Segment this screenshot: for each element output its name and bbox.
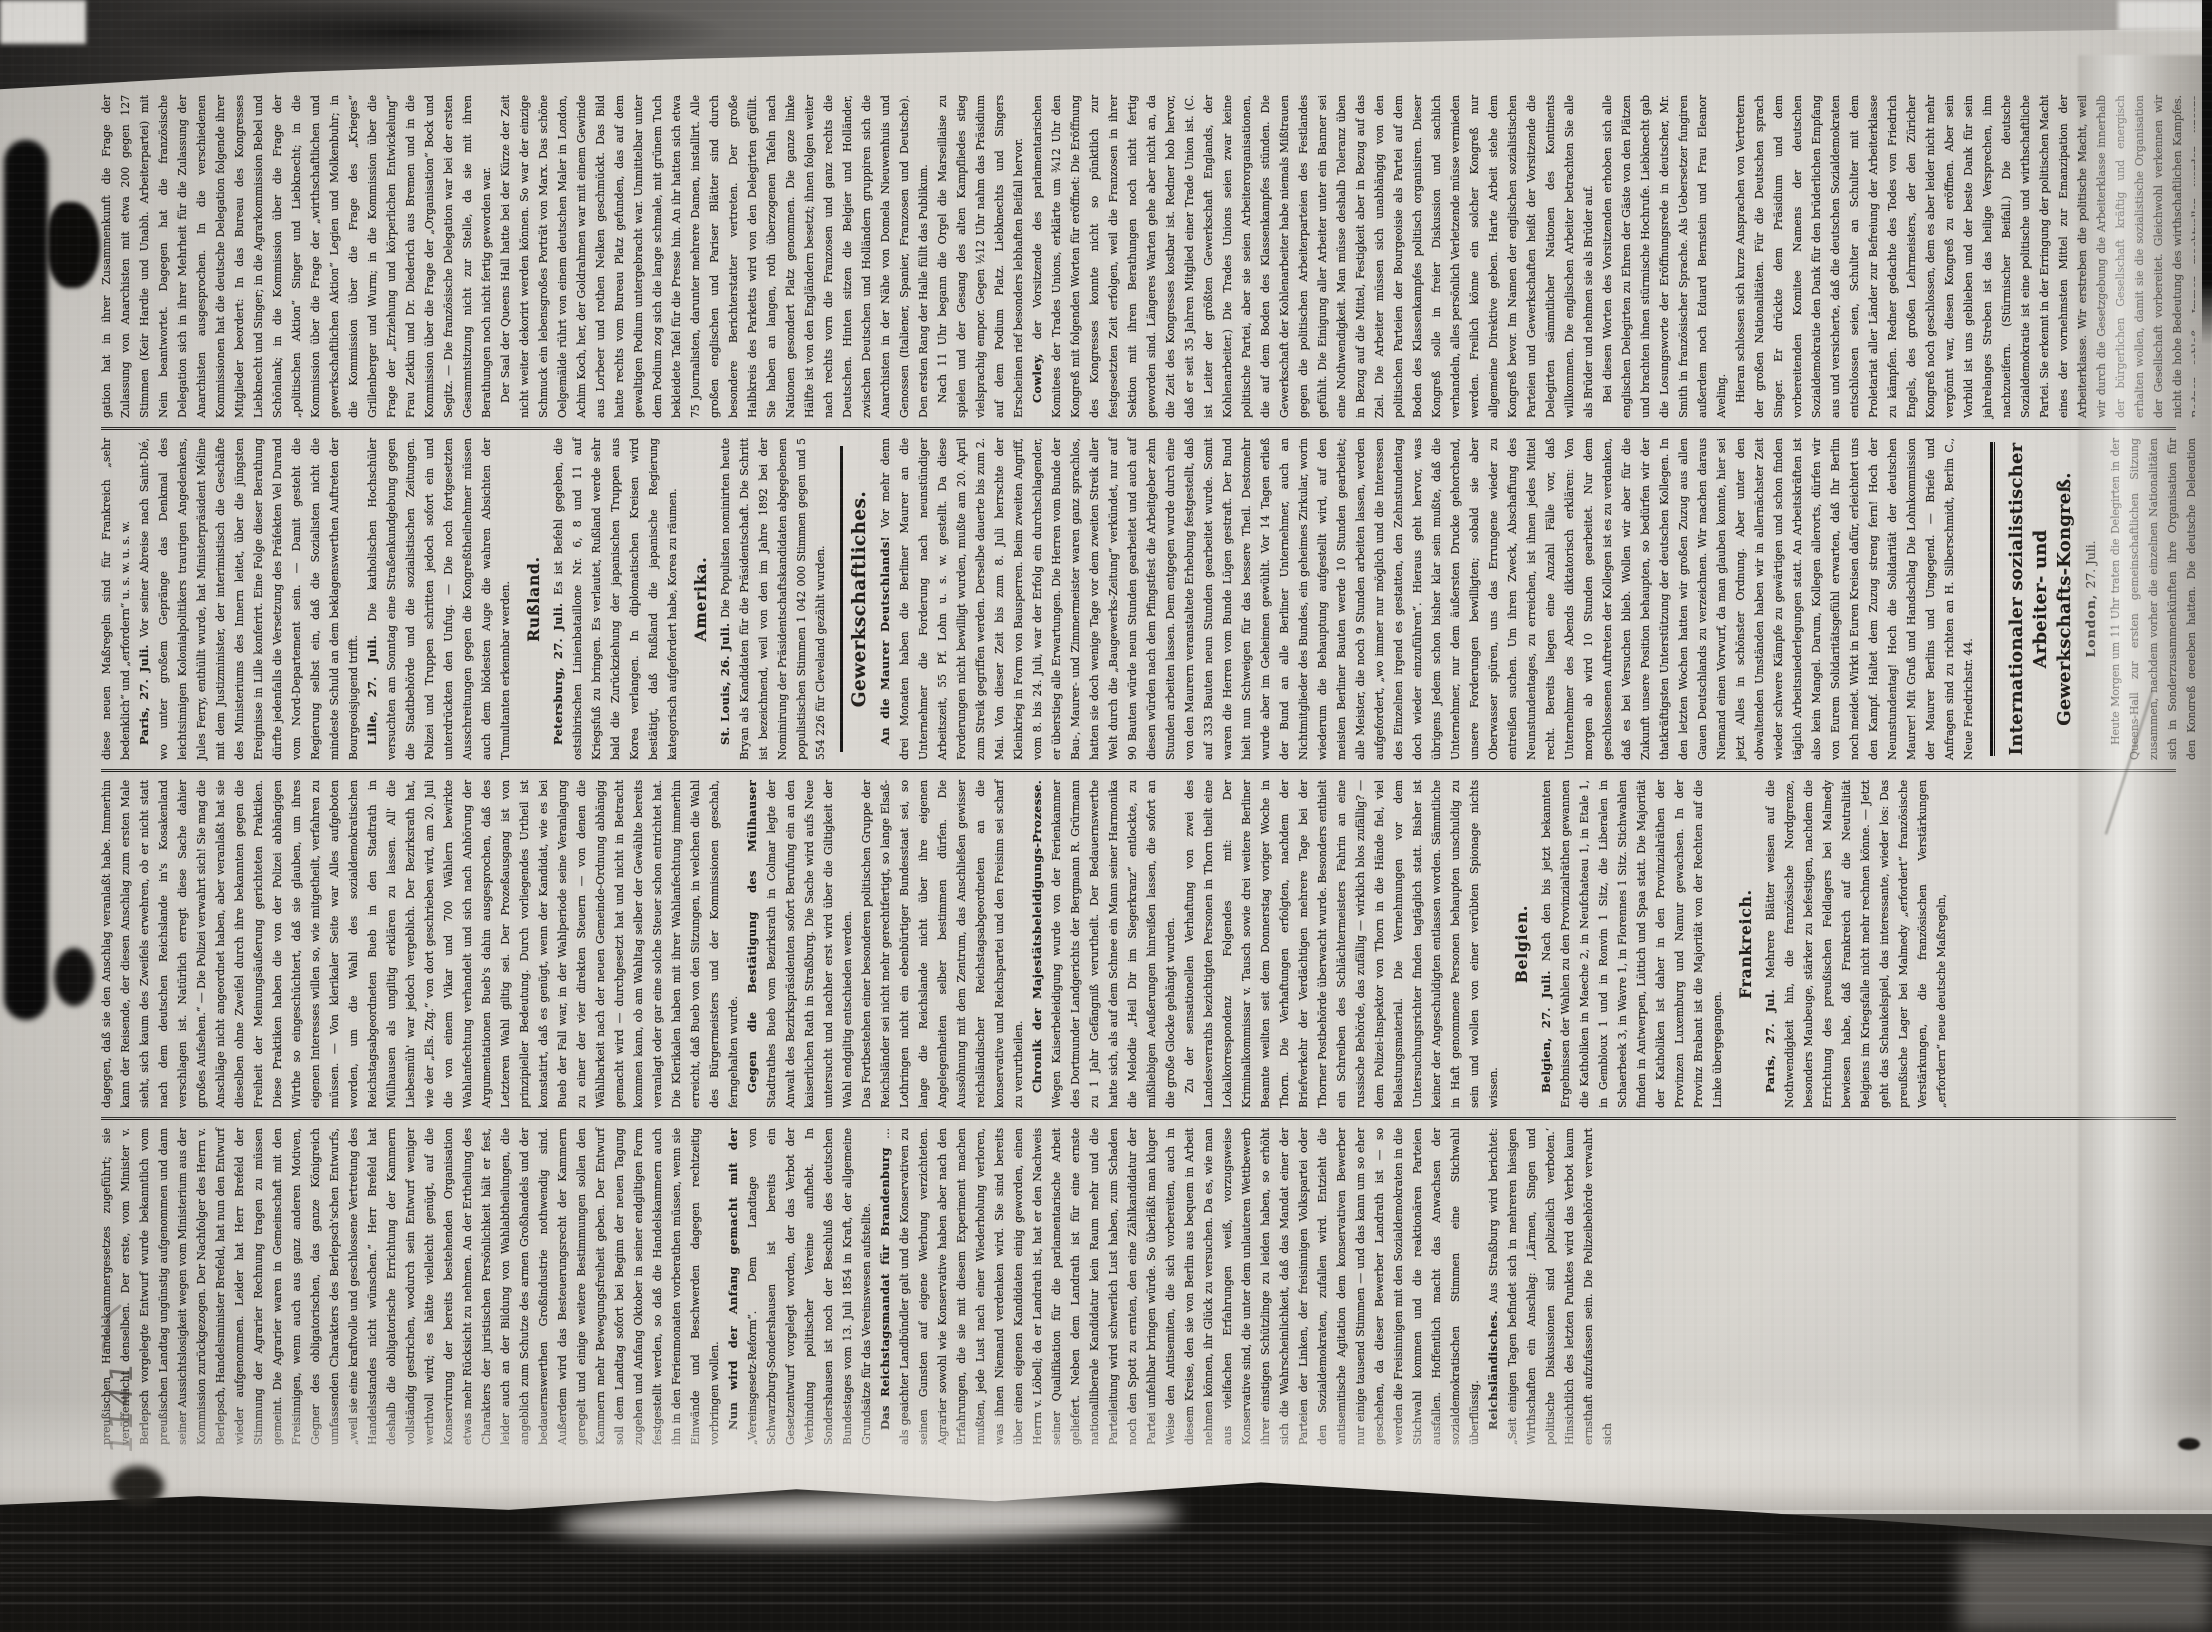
paragraph-lead: Chronik der Majestätsbeleidigungs-Prozes… — [1030, 780, 1044, 1093]
newspaper-column-2: dagegen, daß sie den Anschlag veranlaßt … — [95, 770, 2195, 1118]
section-headline: Frankreich. — [1736, 780, 1755, 1108]
newspaper-scan: preußischen Handelskammergesetzes zugefü… — [0, 0, 2212, 1632]
article-paragraph: St. Louis, 26. Juli. Die Populisten nomi… — [716, 438, 830, 760]
paragraph-lead: Reichsländisches. — [1486, 1303, 1500, 1430]
paragraph-lead: Paris, 27. Jul. — [1763, 978, 1777, 1093]
section-headline: Belgien. — [1512, 780, 1531, 1108]
paragraph-lead: An die Maurer Deutschlands! — [878, 528, 892, 745]
paragraph-lead: Nun wird der Anfang gemacht mit der — [726, 1128, 740, 1430]
paragraph-lead: Paris, 27. Juli. — [137, 637, 151, 745]
book-edge-corner — [1960, 1545, 2212, 1632]
article-paragraph: Petersburg, 27. Juli. Es ist Befehl gege… — [549, 438, 682, 760]
newspaper-body: preußischen Handelskammergesetzes zugefü… — [95, 85, 2195, 1455]
article-paragraph: Nach 11 Uhr begann die Orgel die Marseil… — [933, 95, 1028, 418]
newspaper-column-3: diese neuen Maßregeln sind für Frankreic… — [95, 428, 2195, 770]
column-rule-1 — [101, 1117, 2176, 1120]
article-paragraph: Paris, 27. Jul. Mehrere Blätter weisen a… — [1761, 780, 1951, 1108]
article-paragraph: An die Maurer Deutschlands! Vor mehr den… — [876, 438, 1978, 760]
article-paragraph: Lille, 27. Juli. Die katholischen Hochsc… — [363, 438, 515, 760]
article-paragraph: Der Saal der Queens Hall hatte bei der K… — [496, 95, 933, 418]
article-paragraph: Bei diesen Worten des Vorsitzenden erhob… — [1598, 95, 1731, 418]
column-rule-3 — [101, 427, 2176, 430]
paragraph-lead: Cowley, — [1030, 339, 1044, 403]
major-headline-line: Internationaler sozialistischer Arbeiter… — [2005, 438, 2053, 760]
paragraph-lead: Petersburg, 27. Juli. — [551, 595, 565, 745]
article-paragraph: Das Reichstagsmandat für Brandenburg … a… — [876, 1128, 1484, 1445]
article-paragraph: Cowley, der Vorsitzende des parlamentari… — [1028, 95, 1598, 418]
paragraph-lead: Lille, 27. Juli. — [365, 621, 379, 745]
article-paragraph: Nun wird der Anfang gemacht mit der „Ver… — [724, 1128, 876, 1445]
paragraph-lead: Belgien, 27. Juli. — [1539, 961, 1553, 1093]
section-headline: Amerika. — [691, 438, 710, 760]
article-paragraph: Heute Morgen um 11 Uhr traten die Delegi… — [2106, 438, 2195, 760]
article-paragraph: Zu der sensationellen Verhaftung von zwe… — [1180, 780, 1503, 1108]
article-paragraph: diese neuen Maßregeln sind für Frankreic… — [97, 438, 135, 760]
article-paragraph: Paris, 27. Juli. Vor seiner Abreise nach… — [135, 438, 363, 760]
pencil-squiggle — [96, 1300, 136, 1360]
article-paragraph: gation hat in ihrer Zusammenkunft die Fr… — [97, 95, 496, 418]
newspaper-column-4: gation hat in ihrer Zusammenkunft die Fr… — [95, 85, 2195, 428]
article-paragraph: Das Fortbestehen einer besonderen politi… — [857, 780, 1028, 1108]
section-rule — [1990, 442, 1995, 756]
section-rule — [840, 446, 843, 752]
section-headline: Gewerkschaftliches. — [850, 438, 869, 760]
dateline-place: London, — [2083, 588, 2098, 657]
newspaper-column-1: preußischen Handelskammergesetzes zugefü… — [95, 1118, 2195, 1455]
paragraph-lead: Gegen die Bestätigung des Mülhauser — [745, 780, 759, 1093]
paragraph-lead: Das Reichstagsmandat für Brandenburg — [878, 1139, 892, 1430]
article-paragraph: dagegen, daß sie den Anschlag veranlaßt … — [97, 780, 743, 1108]
major-headline: Internationaler sozialistischer Arbeiter… — [2005, 438, 2077, 760]
major-headline-line: Gewerkschafts-Kongreß. — [2053, 438, 2077, 760]
column-rule-2 — [101, 769, 2176, 772]
article-paragraph: preußischen Handelskammergesetzes zugefü… — [97, 1128, 724, 1445]
article-paragraph: Belgien, 27. Juli. Nach den bis jetzt be… — [1537, 780, 1727, 1108]
article-paragraph: Gegen die Bestätigung des Mülhauser Stad… — [743, 780, 857, 1108]
article-paragraph: Chronik der Majestätsbeleidigungs-Prozes… — [1028, 780, 1180, 1108]
article-paragraph: Hieran schlossen sich kurze Ansprachen v… — [1731, 95, 2195, 418]
dateline: London, 27. Juli. — [2081, 438, 2100, 760]
section-headline: Rußland. — [524, 438, 543, 760]
article-paragraph: Reichsländisches. Aus Straßburg wird ber… — [1484, 1128, 1617, 1445]
paragraph-lead: St. Louis, 26. Juli. — [718, 618, 732, 745]
